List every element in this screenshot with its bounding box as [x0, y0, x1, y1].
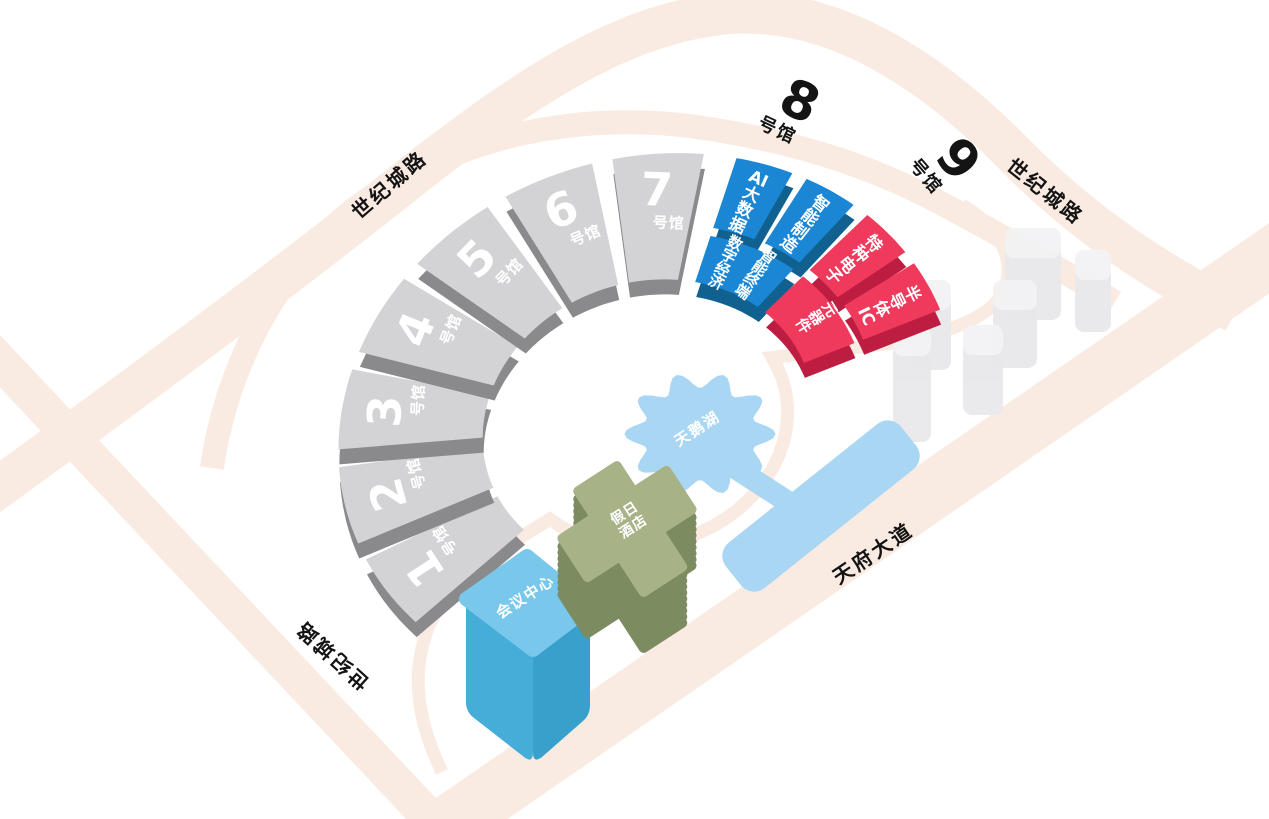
- tower: [963, 325, 1003, 415]
- tower-top: [963, 325, 1003, 355]
- road-network: [0, 13, 1269, 819]
- tower-top: [1075, 250, 1111, 280]
- tower-top: [1005, 228, 1061, 258]
- tower: [1075, 250, 1111, 332]
- tower-top: [993, 280, 1037, 310]
- expo-map-canvas: 1号馆2号馆3号馆4号馆5号馆6号馆7号馆8号馆9号馆AI大数据智能制造数字经济…: [0, 0, 1269, 819]
- expo-venue-map: 1号馆2号馆3号馆4号馆5号馆6号馆7号馆8号馆9号馆AI大数据智能制造数字经济…: [0, 0, 1269, 819]
